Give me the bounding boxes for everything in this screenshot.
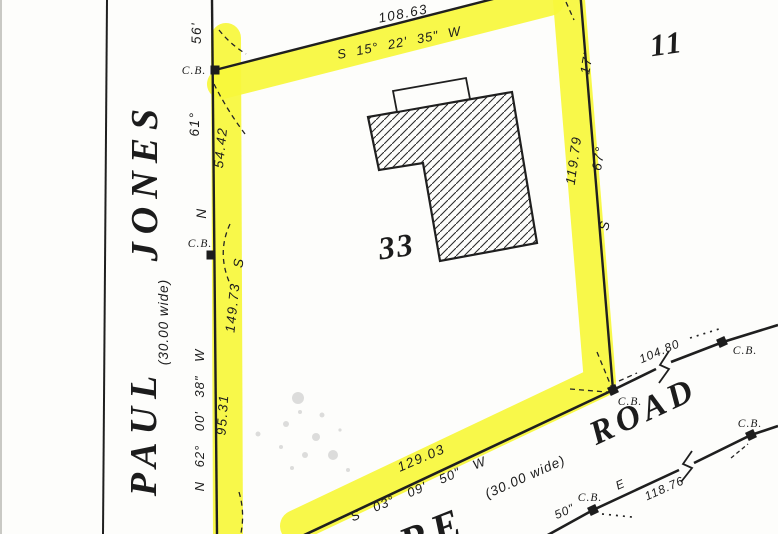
west-north-mark: N bbox=[194, 207, 209, 218]
scan-edge bbox=[0, 0, 2, 534]
street-width-note: (30.00 wide) bbox=[156, 279, 171, 365]
plat-drawing: 108.63 S 15° 22' 35" W 56' 61° 54.42 N S… bbox=[0, 0, 778, 534]
west-bearing-label: N 62° 00' 38" W bbox=[192, 348, 207, 492]
west-tie-label: 56' bbox=[189, 22, 204, 44]
west-angle-label: 61° bbox=[187, 112, 202, 137]
west-seg3-distance: 95.31 bbox=[214, 394, 232, 436]
lot-number-adjacent: 11 bbox=[648, 24, 686, 63]
paper-background bbox=[0, 0, 778, 534]
cb-label: C.B. bbox=[618, 396, 642, 408]
cb-label: C.B. bbox=[182, 65, 206, 77]
street-name-paul: PAUL bbox=[123, 368, 165, 497]
lot-number-subject: 33 bbox=[375, 226, 417, 267]
cb-label: C.B. bbox=[733, 345, 757, 357]
cb-label: C.B. bbox=[578, 492, 602, 504]
west-s-mark: S bbox=[231, 257, 247, 269]
cb-label: C.B. bbox=[738, 418, 762, 430]
cb-monument-icon bbox=[207, 251, 216, 260]
cb-label: C.B. bbox=[188, 238, 212, 250]
survey-plat-scan: 108.63 S 15° 22' 35" W 56' 61° 54.42 N S… bbox=[0, 0, 778, 534]
cb-monument-icon bbox=[211, 66, 220, 75]
street-name-jones: JONES bbox=[124, 101, 166, 262]
